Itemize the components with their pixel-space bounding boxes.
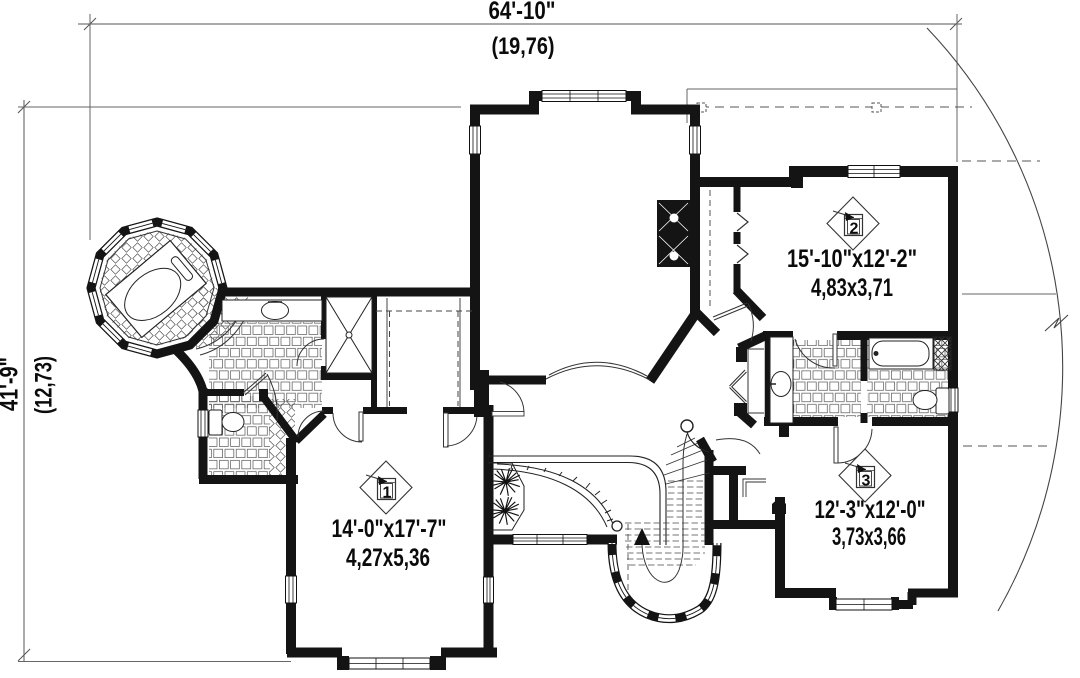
svg-text:3,73x3,66: 3,73x3,66 [832,523,906,551]
svg-text:64'-10": 64'-10" [489,0,556,25]
svg-text:4,27x5,36: 4,27x5,36 [346,544,430,572]
svg-text:(12,73): (12,73) [31,356,58,414]
svg-text:(19,76): (19,76) [492,33,555,60]
svg-text:12'-3"x12'-0": 12'-3"x12'-0" [815,496,926,524]
svg-text:41'-9": 41'-9" [0,357,24,411]
svg-text:4,83x3,71: 4,83x3,71 [811,274,893,302]
svg-text:2: 2 [850,221,859,238]
svg-text:1: 1 [383,485,392,502]
svg-text:14'-0"x17'-7": 14'-0"x17'-7" [332,515,447,543]
svg-text:3: 3 [862,473,871,490]
